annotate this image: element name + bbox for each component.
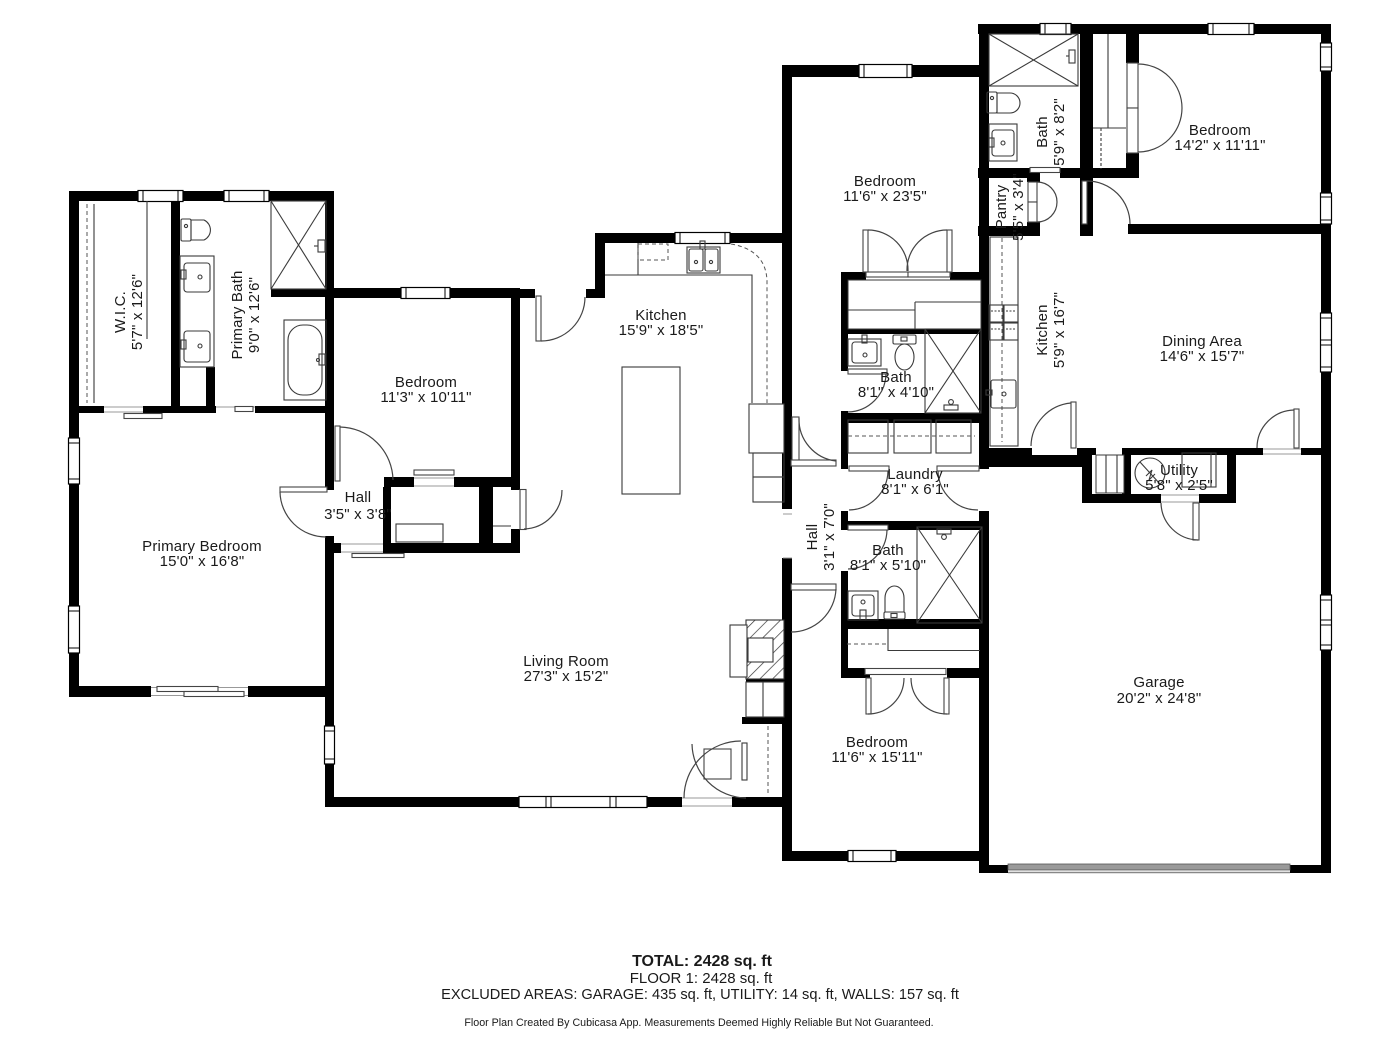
svg-text:11'3" x 10'11": 11'3" x 10'11" [380, 389, 471, 406]
svg-text:27'3" x 15'2": 27'3" x 15'2" [524, 668, 609, 685]
svg-text:Floor Plan Created By Cubicasa: Floor Plan Created By Cubicasa App. Meas… [464, 1017, 933, 1029]
svg-text:5'9" x 16'7": 5'9" x 16'7" [1051, 292, 1068, 368]
svg-text:3'1" x 7'0": 3'1" x 7'0" [821, 503, 838, 571]
svg-text:5'9" x 8'2": 5'9" x 8'2" [1051, 98, 1068, 166]
svg-text:5'5" x 3'4": 5'5" x 3'4" [1010, 173, 1027, 241]
svg-text:Garage: Garage [1133, 674, 1184, 691]
svg-text:W.I.C.: W.I.C. [112, 291, 129, 333]
svg-text:TOTAL: 2428 sq. ft: TOTAL: 2428 sq. ft [632, 953, 773, 970]
svg-text:8'1" x 4'10": 8'1" x 4'10" [858, 384, 934, 401]
svg-text:5'8" x 2'5": 5'8" x 2'5" [1145, 477, 1213, 494]
svg-text:FLOOR 1: 2428 sq. ft: FLOOR 1: 2428 sq. ft [630, 970, 773, 987]
svg-text:Kitchen: Kitchen [1034, 304, 1051, 355]
svg-text:11'6" x 23'5": 11'6" x 23'5" [843, 188, 927, 205]
svg-text:11'6" x 15'11": 11'6" x 15'11" [831, 749, 922, 766]
svg-text:14'6" x 15'7": 14'6" x 15'7" [1160, 348, 1245, 365]
svg-text:8'1" x 5'10": 8'1" x 5'10" [850, 557, 926, 574]
svg-text:5'7" x 12'6": 5'7" x 12'6" [129, 274, 146, 350]
svg-text:15'9" x 18'5": 15'9" x 18'5" [619, 322, 704, 339]
svg-text:8'1" x 6'1": 8'1" x 6'1" [881, 481, 949, 498]
svg-text:14'2" x 11'11": 14'2" x 11'11" [1174, 137, 1265, 154]
svg-text:Hall: Hall [804, 524, 821, 551]
svg-text:9'0" x 12'6": 9'0" x 12'6" [246, 277, 263, 353]
svg-text:20'2" x 24'8": 20'2" x 24'8" [1117, 690, 1202, 707]
svg-text:3'5" x 3'8": 3'5" x 3'8" [324, 506, 392, 523]
svg-text:Bath: Bath [1034, 116, 1051, 148]
svg-text:Primary Bath: Primary Bath [229, 270, 246, 359]
svg-text:EXCLUDED AREAS: GARAGE: 435 sq: EXCLUDED AREAS: GARAGE: 435 sq. ft, UTIL… [441, 987, 959, 1003]
svg-text:Pantry: Pantry [993, 184, 1010, 229]
svg-text:Hall: Hall [345, 489, 372, 506]
svg-text:15'0" x 16'8": 15'0" x 16'8" [160, 553, 245, 570]
